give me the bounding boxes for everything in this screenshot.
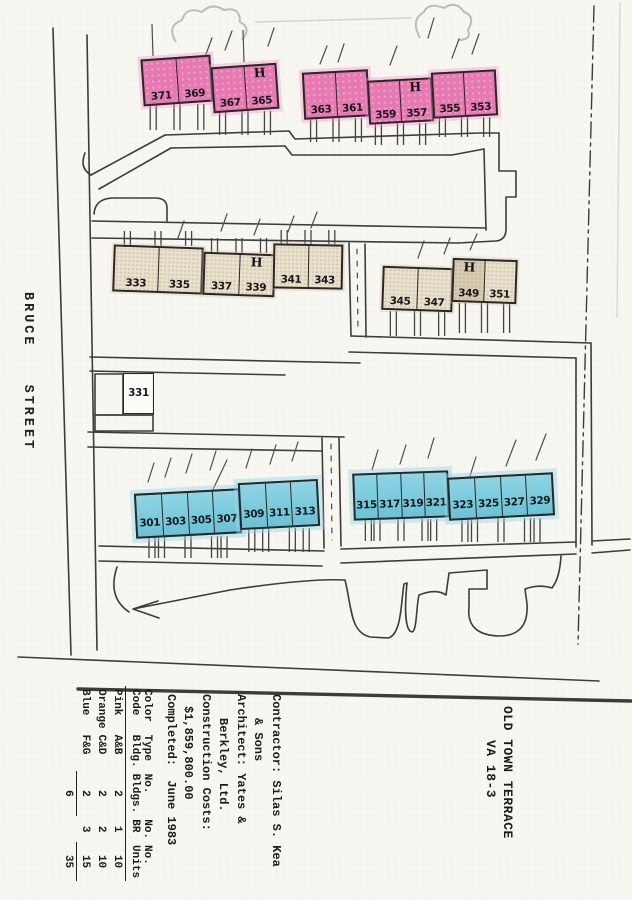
building-unit-319: 319 <box>401 473 426 517</box>
costs-value: $1,859,800.00 <box>179 706 197 867</box>
building-unit-351: 351 <box>484 261 515 302</box>
building-unit-323: 323 <box>449 478 477 518</box>
building-unit-309: 309 <box>240 484 268 528</box>
legend-cell: 6 <box>60 771 77 817</box>
legend-header: ColorCode <box>126 686 154 732</box>
building-unit-337: 337 <box>204 254 240 294</box>
contractor-line: Contractor: Silas S. Kea <box>267 694 285 867</box>
legend-cell: C&D <box>93 732 109 771</box>
legend-cell: 15 <box>77 842 94 881</box>
legend-head-row: ColorCodeTypeBldg.No.Bldgs.No.BRNo.Units <box>126 686 154 881</box>
architect-line: Architect: Yates & <box>232 694 250 867</box>
legend-body: PinkA&B2110OrangeC&D2210BlueF&G2315635 <box>60 686 126 881</box>
building-unit-369: 369 <box>176 57 211 102</box>
unit-number: 345 <box>389 295 410 309</box>
building-unit-353: 353 <box>464 71 496 115</box>
legend-header: No.Bldgs. <box>126 771 154 817</box>
legend-header: No.Units <box>126 842 154 881</box>
building-363: 363361 <box>302 69 370 119</box>
building-345: 345347 <box>381 266 453 312</box>
unit-number: 337 <box>211 280 232 294</box>
legend-cell: Blue <box>77 686 94 732</box>
building-unit-311: 311 <box>266 482 294 526</box>
legend-cell: Pink <box>109 686 126 732</box>
building-371: 371369 <box>140 55 213 107</box>
legend-cell: 1 <box>109 816 126 842</box>
paper-edge-line <box>617 2 620 318</box>
legend-row: PinkA&B2110 <box>109 686 126 881</box>
unit-number: 309 <box>243 508 265 528</box>
unit-number: 331 <box>128 387 149 400</box>
building-unit-343: 343 <box>308 246 341 288</box>
building-unit-341: 341 <box>275 245 309 287</box>
legend-cell: 2 <box>109 771 126 817</box>
unit-number: 359 <box>375 108 396 122</box>
unit-number: 353 <box>470 101 491 115</box>
building-unit-327: 327 <box>500 476 528 516</box>
building-unit-357: H357 <box>400 79 432 121</box>
unit-number: 327 <box>504 496 526 516</box>
unit-number: 305 <box>191 514 213 534</box>
building-unit-365: H365 <box>244 65 277 109</box>
building-333: 333335 <box>112 244 204 294</box>
unit-number: 311 <box>269 506 291 526</box>
building-unit-321: 321 <box>424 472 448 516</box>
building-unit-371: 371 <box>143 59 179 104</box>
building-unit-313: 313 <box>291 481 318 525</box>
building-unit-361: 361 <box>335 71 368 116</box>
building-unit-339: H339 <box>239 255 274 295</box>
legend-cell <box>60 816 77 842</box>
unit-number: 365 <box>251 94 273 108</box>
building-unit-367: 367 <box>213 67 247 111</box>
building-unit-303: 303 <box>162 493 190 535</box>
handicap-marker: H <box>463 260 475 273</box>
unit-number: 371 <box>151 89 173 103</box>
tree-squiggles <box>172 5 471 42</box>
handicap-marker: H <box>251 255 263 268</box>
project-title: OLD TOWN TERRACE VA 18-3 <box>482 706 516 839</box>
building-309: 309311313 <box>238 479 320 530</box>
unit-number: 339 <box>245 281 266 295</box>
building-unit-333: 333 <box>114 247 159 291</box>
street-label: BRUCE STREET <box>20 292 35 451</box>
building-315: 315317319321 <box>352 470 450 520</box>
building-331: 331 <box>123 373 154 414</box>
building-unit-359: 359 <box>369 81 402 123</box>
unit-number: 319 <box>402 497 423 517</box>
building-unit-331: 331 <box>124 374 153 413</box>
building-359: 359H357 <box>367 77 434 124</box>
legend-cell: 2 <box>93 771 109 817</box>
legend-cell: 2 <box>77 771 94 817</box>
building-unit-335: 335 <box>158 248 202 292</box>
legend-cell: 2 <box>93 816 109 842</box>
unit-number: 335 <box>169 278 190 292</box>
building-unit-305: 305 <box>187 492 215 534</box>
legend-cell: 35 <box>60 842 77 881</box>
building-341: 341343 <box>273 243 344 289</box>
architect-line2: Berkley, Ltd. <box>214 718 232 867</box>
unit-number: 367 <box>220 96 242 110</box>
unit-number: 355 <box>439 102 460 116</box>
project-info: Contractor: Silas S. Kea & Sons Architec… <box>162 694 285 867</box>
unit-number: 347 <box>423 296 444 310</box>
faint-scan-line <box>255 18 412 22</box>
legend-cell: 10 <box>93 842 109 881</box>
unit-number: 333 <box>125 277 146 291</box>
unit-number: 321 <box>426 496 447 516</box>
title-block: OLD TOWN TERRACE VA 18-3 Contractor: Sil… <box>0 680 632 900</box>
unit-number: 369 <box>184 87 206 101</box>
building-unit-347: 347 <box>417 269 451 310</box>
legend-cell: Orange <box>93 686 109 732</box>
unit-number: 315 <box>356 499 377 519</box>
handicap-marker: H <box>253 66 266 80</box>
unit-number: 361 <box>342 102 363 116</box>
legend-cell: 10 <box>109 842 126 881</box>
unit-number: 343 <box>314 274 335 287</box>
legend-cell: 3 <box>77 816 94 842</box>
building-unit-317: 317 <box>378 474 403 518</box>
legend-total-row: 635 <box>60 686 77 881</box>
project-title-line2: VA 18-3 <box>482 740 499 839</box>
building-unit-345: 345 <box>383 268 418 309</box>
legend-row: OrangeC&D2210 <box>93 686 109 881</box>
unit-number: 329 <box>529 494 551 514</box>
building-301: 301303305307 <box>134 488 242 538</box>
unit-number: 301 <box>139 516 161 536</box>
building-unit-315: 315 <box>354 475 379 519</box>
unit-number: 363 <box>310 103 331 117</box>
building-unit-301: 301 <box>136 494 164 536</box>
legend-cell <box>60 686 77 732</box>
building-unit-349: H349 <box>453 260 485 301</box>
legend-cell: A&B <box>109 732 126 771</box>
building-337: 337H339 <box>202 252 275 297</box>
building-unit-325: 325 <box>475 477 503 517</box>
legend-header: TypeBldg. <box>126 732 154 771</box>
unit-number: 357 <box>406 107 427 121</box>
completed-line: Completed: June 1983 <box>162 694 180 867</box>
legend-table: ColorCodeTypeBldg.No.Bldgs.No.BRNo.Units… <box>60 686 153 881</box>
scanned-site-plan-page: 371369367H365363361359H35735535333333533… <box>0 0 632 900</box>
legend-row: BlueF&G2315 <box>77 686 94 881</box>
building-unit-329: 329 <box>526 474 553 514</box>
unit-number: 349 <box>458 287 479 301</box>
unit-number: 303 <box>165 515 187 535</box>
contractor-line2: & Sons <box>249 718 267 867</box>
building-unit-307: 307 <box>213 490 240 532</box>
unit-number: 341 <box>281 274 302 287</box>
building-355: 355353 <box>431 69 498 118</box>
costs-label: Construction Costs: <box>197 694 215 867</box>
building-323: 323325327329 <box>447 472 555 520</box>
unit-number: 313 <box>294 505 316 525</box>
legend-cell <box>60 732 77 771</box>
handicap-marker: H <box>409 80 421 94</box>
project-title-line1: OLD TOWN TERRACE <box>499 706 516 839</box>
roads <box>83 131 630 638</box>
building-349: H349351 <box>451 258 517 304</box>
building-367: 367H365 <box>210 63 279 113</box>
legend-cell: F&G <box>77 732 94 771</box>
unit-number: 307 <box>216 512 238 532</box>
building-unit-355: 355 <box>433 73 466 117</box>
legend-header: No.BR <box>126 816 154 842</box>
unit-number: 351 <box>489 288 510 302</box>
unit-number: 323 <box>452 498 474 518</box>
unit-number: 317 <box>379 498 400 518</box>
unit-number: 325 <box>478 497 500 517</box>
building-unit-363: 363 <box>304 73 338 118</box>
